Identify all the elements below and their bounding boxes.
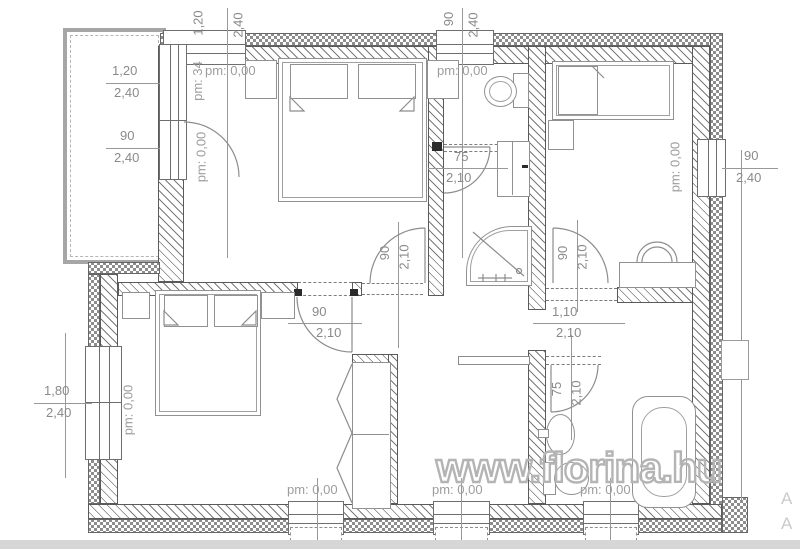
wardrobe-open-doors: [337, 364, 352, 503]
shower-fittings: [478, 274, 512, 282]
door-swing-arc: [551, 365, 598, 412]
bed-fold: [242, 311, 256, 325]
floor-plan: 1,20 2,40 90 2,40 1,20 2,40 90 2,40 90 2…: [0, 0, 800, 549]
door-swing-arc: [297, 297, 352, 352]
door-swing-arc: [553, 228, 608, 283]
door-swing-arc: [184, 122, 239, 177]
edge-letter: A: [781, 514, 792, 534]
bed-fold: [400, 97, 414, 111]
door-swing-arc: [444, 147, 490, 193]
door-swing-arc: [370, 228, 425, 283]
bed-fold: [290, 97, 304, 111]
washbasin-faucet-arc: [637, 242, 677, 262]
edge-letter: A: [781, 489, 792, 509]
watermark: www.florina.hu: [436, 444, 721, 492]
bed-fold: [164, 311, 178, 325]
pillow-fold: [592, 66, 604, 78]
